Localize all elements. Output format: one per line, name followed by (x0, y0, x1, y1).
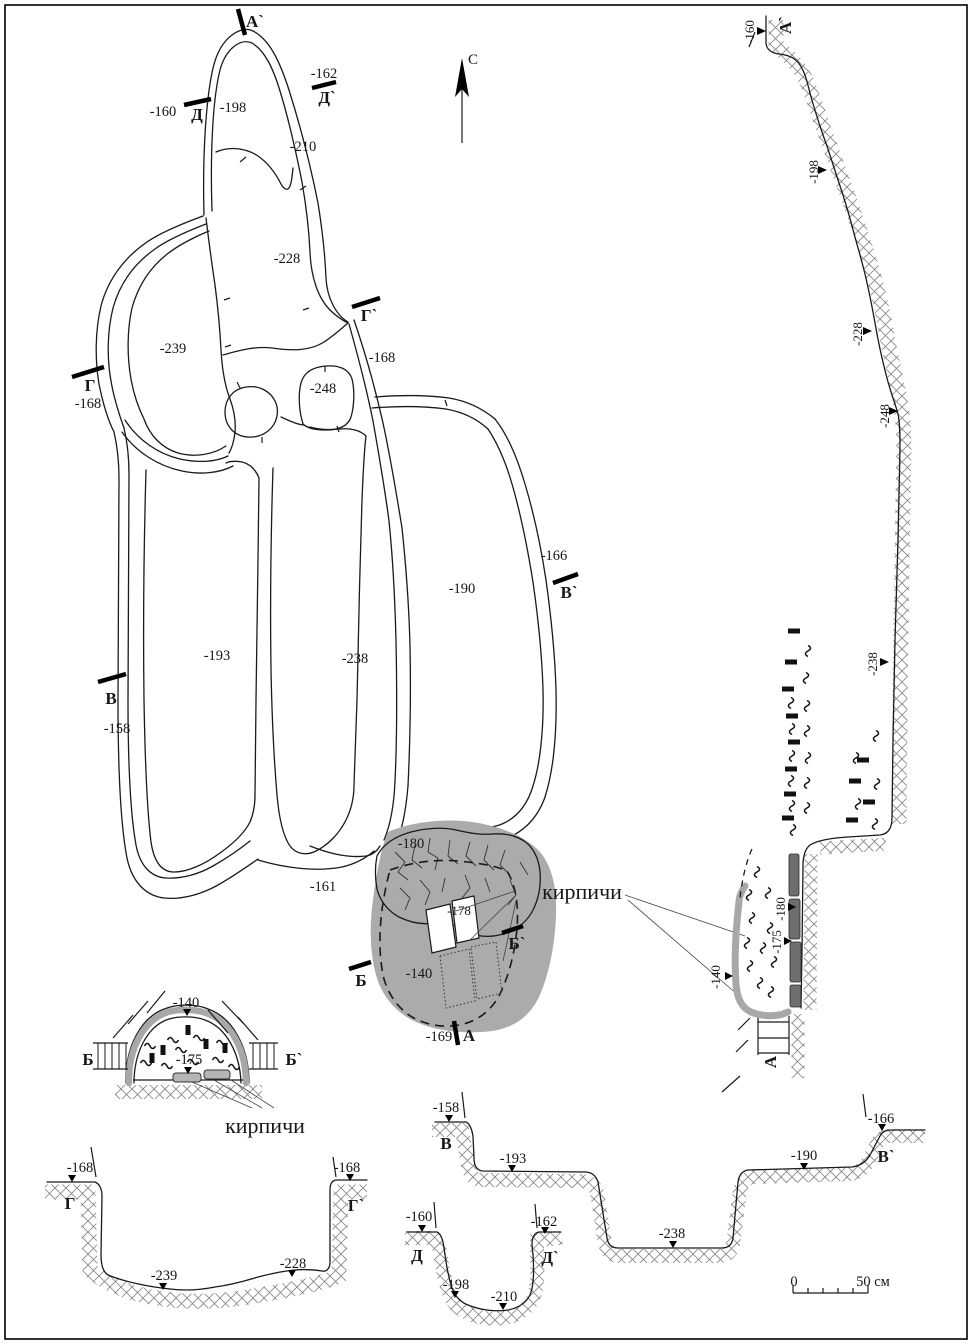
depth-248: -248 (310, 381, 337, 397)
profile-depth-140: -140 (708, 965, 723, 989)
marker-v-prime: В` (561, 583, 578, 602)
depth-140: -140 (406, 966, 433, 982)
depth-178: -178 (447, 903, 471, 918)
depth-169: -169 (426, 1029, 453, 1045)
profile-depth-198: -198 (806, 160, 821, 184)
sv-marker-right: В` (878, 1147, 895, 1166)
marker-b: Б (355, 971, 366, 990)
depth-193: -193 (204, 648, 231, 664)
sv-depth-left: -158 (433, 1100, 460, 1116)
marker-b-prime: Б` (509, 934, 526, 953)
depth-228: -228 (274, 251, 301, 267)
profile-depth-180: -180 (773, 897, 788, 921)
sb-depth-175: -175 (176, 1052, 203, 1068)
sv-depth-190: -190 (791, 1148, 818, 1164)
sb-depth-140: -140 (173, 995, 200, 1011)
sb-caption: кирпичи (225, 1113, 305, 1138)
sg-depth-right: -168 (334, 1160, 361, 1176)
sd-marker-right: Д` (541, 1248, 558, 1267)
profile-depth-160: -160 (742, 20, 757, 44)
profile-marker-a-bottom: А (761, 1055, 780, 1068)
scale-zero: 0 (790, 1274, 797, 1290)
depth-238: -238 (342, 651, 369, 667)
depth-198: -198 (220, 100, 247, 116)
depth-162: -162 (311, 66, 338, 82)
profile-depth-175: -175 (769, 930, 784, 954)
depth-190: -190 (449, 581, 476, 597)
depth-158: -158 (104, 721, 131, 737)
sd-depth-left: -160 (406, 1209, 433, 1225)
excavation-figure: С (0, 0, 972, 1344)
sg-depth-239: -239 (151, 1268, 178, 1284)
depth-161: -161 (310, 879, 337, 895)
depth-168-left: -168 (75, 396, 102, 412)
sd-marker-left: Д (411, 1246, 423, 1265)
marker-v: В (105, 689, 116, 708)
marker-a-bottom: А (463, 1026, 476, 1045)
sv-marker-left: В (440, 1134, 451, 1153)
marker-g: Г (85, 376, 96, 395)
sg-depth-left: -168 (67, 1160, 94, 1176)
profile-depth-238: -238 (865, 652, 880, 676)
depth-166: -166 (541, 548, 568, 564)
profile-marker-a-top: А` (776, 16, 795, 34)
sd-depth-198: -198 (443, 1277, 470, 1293)
sv-depth-193: -193 (500, 1151, 527, 1167)
depth-160: -160 (150, 104, 177, 120)
sv-depth-238: -238 (659, 1226, 686, 1242)
sg-marker-left: Г (65, 1194, 76, 1213)
depth-168-right: -168 (369, 350, 396, 366)
profile-depth-228: -228 (850, 322, 865, 346)
sd-depth-210: -210 (491, 1289, 518, 1305)
scale-end: 50 см (856, 1274, 890, 1290)
figure-border (5, 5, 967, 1339)
marker-d: Д (191, 105, 203, 124)
sb-marker-left: Б (82, 1050, 93, 1069)
depth-210: -210 (290, 139, 317, 155)
depth-239: -239 (160, 341, 187, 357)
north-label: С (468, 52, 478, 68)
bricks-label: кирпичи (542, 879, 622, 904)
sg-marker-right: Г` (348, 1196, 364, 1215)
sb-marker-right: Б` (286, 1050, 303, 1069)
figure-canvas: С (0, 0, 972, 1344)
marker-g-prime: Г` (361, 306, 377, 325)
marker-d-prime: Д` (318, 88, 335, 107)
profile-depth-248: -248 (877, 404, 892, 428)
sg-depth-228: -228 (280, 1256, 307, 1272)
marker-a-top: А` (246, 12, 264, 31)
depth-180: -180 (398, 836, 425, 852)
